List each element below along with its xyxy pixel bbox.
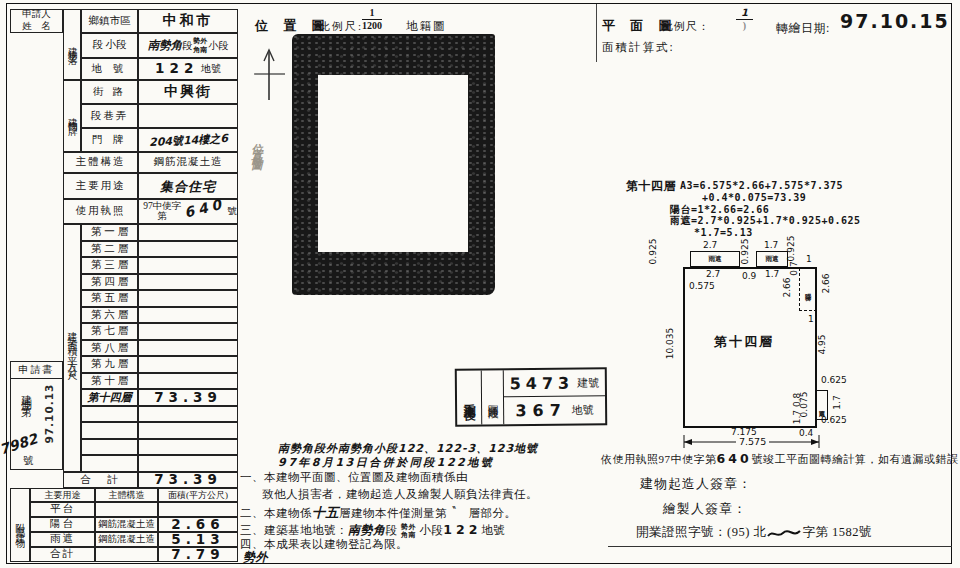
annex-row-platform-area bbox=[158, 502, 238, 517]
application-title: 申請書 bbox=[11, 362, 62, 379]
label-main-usage: 主要用途 bbox=[63, 173, 138, 199]
rain-canopy-label-1: 雨遮 bbox=[709, 256, 722, 263]
annex-row-total-structure bbox=[95, 547, 158, 562]
floor-blank-2-value bbox=[138, 422, 238, 439]
label-township: 鄉鎮市區 bbox=[81, 9, 138, 33]
resurvey-land-row: 367 地號 bbox=[504, 396, 605, 424]
dim-10035-left: 10.035 bbox=[666, 324, 675, 364]
plan-scale-label: 比例尺： bbox=[662, 21, 710, 32]
floor-2-label: 第 二 層 bbox=[81, 241, 138, 257]
dim-17-08-inner: 1.7 0.8 bbox=[793, 391, 802, 427]
value-main-structure: 鋼筋混凝土造 bbox=[138, 152, 238, 173]
floor-blank-1-label bbox=[81, 406, 138, 422]
note-handwritten-merge: 97年8月13日合併於同段122地號 bbox=[278, 457, 494, 468]
applicant-label-line1: 申請人 bbox=[22, 9, 51, 21]
land-number-unit: 地號 bbox=[572, 402, 594, 417]
area-total-label: 合 計 bbox=[63, 472, 138, 488]
signature-drafter-label: 繪製人簽章： bbox=[663, 502, 747, 515]
location-map-type: 地籍圖 bbox=[406, 21, 447, 33]
floor-10-value bbox=[138, 373, 238, 389]
resurvey-stamp-box: 重測後 圓通段 5473 建號 367 地號 bbox=[455, 367, 608, 426]
rain-canopy-label-2: 雨遮 bbox=[766, 256, 779, 263]
floor-14-value: 73.39 bbox=[138, 389, 238, 406]
floor-7-label: 第 七 層 bbox=[81, 323, 138, 340]
floor-2-value bbox=[138, 241, 238, 257]
note-item-3-stack: 勢外角南 bbox=[401, 523, 416, 539]
signature-area-underline bbox=[608, 546, 952, 547]
dim-0575-inset: 0.575 bbox=[689, 282, 715, 291]
business-license-line: 開業證照字號：(95) 北字第 1582號 bbox=[636, 526, 872, 540]
note-item-2: 二、本建物係十五層建物本件僅測量第〝 層部分。 bbox=[240, 506, 517, 520]
applicant-label-line2: 姓 名 bbox=[22, 21, 51, 33]
signature-builder-label: 建物起造人簽章： bbox=[640, 477, 752, 490]
plan-scale-fraction: 1 ) bbox=[736, 7, 753, 32]
balcony-shape: 陽台 bbox=[799, 268, 817, 311]
plan-calc-label: 面積計算式: bbox=[602, 42, 675, 54]
formula-line-2: +0.4*0.075=73.39 bbox=[702, 193, 806, 203]
floor-14-label: 第十四層 bbox=[81, 389, 138, 406]
annex-row-platform-use: 平台 bbox=[30, 502, 95, 517]
note-item-2-handwritten: 十五 bbox=[312, 505, 339, 520]
floor-8-value bbox=[138, 340, 238, 356]
certification-line: 依使用執照97中使字第640號竣工平面圖轉繪計算，如有遺漏或錯誤 bbox=[601, 453, 959, 466]
dim-1-below-balcony: 1 bbox=[808, 315, 814, 324]
plan-date-stamp: 97.10.15 bbox=[840, 12, 950, 31]
note-item-4: 四、本成果表以建物登記為限。 bbox=[240, 539, 408, 551]
certification-license-number: 640 bbox=[717, 451, 752, 466]
floor-5-label: 第 五 層 bbox=[81, 290, 138, 307]
application-number-box: 申請書 建測字第 號 97.10.13 bbox=[10, 361, 63, 470]
value-land-number: 122 地號 bbox=[138, 58, 238, 80]
license-number-handwritten: 640 bbox=[183, 196, 226, 220]
label-door-number: 門 牌 bbox=[81, 128, 138, 152]
annex-row-total-use: 合計 bbox=[30, 547, 95, 562]
section-handwritten: 南勢角 bbox=[148, 40, 183, 52]
north-arrow-icon bbox=[252, 44, 288, 102]
handwritten-scribble bbox=[766, 527, 802, 540]
applicant-name-box: 申請人 姓 名 bbox=[10, 9, 63, 33]
note-item-1: 一、本建物平面圖、位置圖及建物面積係由 bbox=[240, 472, 468, 484]
dim-17-below: 1.7 bbox=[765, 270, 779, 279]
label-main-structure: 主體構造 bbox=[63, 152, 138, 173]
label-lane-alley: 段巷弄 bbox=[81, 104, 138, 128]
section-suffix: 小段 bbox=[208, 41, 228, 51]
floor-blank-4-label bbox=[81, 455, 138, 472]
group-building-location: 建物坐落 bbox=[63, 9, 81, 80]
floor-blank-1-value bbox=[138, 406, 238, 422]
map-faint-handwriting: 位置略圖 bbox=[248, 134, 263, 158]
annex-row-balcony-structure: 鋼筋混凝土造 bbox=[95, 517, 158, 532]
plan-date-label: 轉繪日期: bbox=[776, 22, 830, 34]
building-number-unit: 建號 bbox=[577, 375, 599, 390]
location-map-scale-fraction: 1 1200 bbox=[362, 7, 382, 32]
land-number: 367 bbox=[515, 401, 567, 420]
dim-0625-bottom: 0.625 bbox=[821, 416, 847, 425]
area-total-value: 73.39 bbox=[138, 472, 238, 488]
bottom-edge-handwriting: 勢外 bbox=[243, 551, 268, 563]
rain-canopy-top-right: 雨遮 bbox=[756, 251, 788, 267]
label-use-license: 使用執照 bbox=[63, 199, 138, 224]
floor-8-label: 第 八 層 bbox=[81, 340, 138, 356]
floor-1-value bbox=[138, 224, 238, 241]
location-map-scale-label: 比例尺: bbox=[319, 21, 363, 32]
building-survey-document: 申請人 姓 名 建物坐落 鄉鎮市區 中和市 段 小段 南勢角段 勢外角南 小段 … bbox=[0, 0, 960, 568]
dim-266-inner: 2.66 bbox=[783, 273, 792, 303]
floor-5-value bbox=[138, 290, 238, 307]
annex-row-canopy-structure: 鋼筋混凝土造 bbox=[95, 532, 158, 547]
dim-27-below: 2.7 bbox=[706, 270, 720, 279]
dim-7575-total: 7.575 bbox=[736, 437, 769, 447]
floor-blank-3-value bbox=[138, 439, 238, 455]
plan-room-label: 第十四層 bbox=[714, 333, 774, 351]
floor-9-label: 第 九 層 bbox=[81, 356, 138, 373]
floor-3-value bbox=[138, 257, 238, 274]
dim-0925-left: 0.925 bbox=[649, 237, 658, 267]
header-divider bbox=[596, 4, 597, 62]
floor-10-label: 第 十 層 bbox=[81, 373, 138, 389]
note-item-3: 三、建築基地地號：南勢角段 勢外角南 小段122地號 bbox=[240, 523, 505, 539]
dim-0925-mid: 0.925 bbox=[741, 237, 750, 267]
group-building-area: 建築面積（平方公尺） bbox=[63, 224, 81, 472]
group-annex-building: 附屬建物 bbox=[10, 488, 30, 562]
dim-495-right: 4.95 bbox=[818, 330, 827, 360]
floor-4-label: 第 四 層 bbox=[81, 274, 138, 290]
note-item-1-continued: 致他人損害者，建物起造人及繪製人願負法律責任。 bbox=[262, 489, 538, 501]
value-lane-alley bbox=[138, 104, 238, 128]
value-township: 中和市 bbox=[138, 9, 238, 33]
dim-266-outer: 2.66 bbox=[822, 269, 831, 299]
dim-27-above: 2.7 bbox=[703, 241, 717, 250]
cadastral-map-inner-white bbox=[318, 75, 468, 252]
balcony-label: 陽台 bbox=[805, 288, 812, 290]
resurvey-building-row: 5473 建號 bbox=[504, 369, 605, 397]
floor-blank-2-label bbox=[81, 422, 138, 439]
floor-9-value bbox=[138, 356, 238, 373]
note-item-3-number: 122 bbox=[443, 522, 481, 537]
value-street: 中興街 bbox=[138, 80, 238, 104]
label-section: 段 小段 bbox=[81, 33, 138, 58]
floor-blank-4-value bbox=[138, 455, 238, 472]
annex-header-use: 主要用途 bbox=[30, 488, 95, 502]
annex-header-structure: 主體構造 bbox=[95, 488, 158, 502]
annex-row-canopy-area: 5.13 bbox=[158, 532, 238, 547]
label-street: 街 路 bbox=[81, 80, 138, 104]
floor-6-label: 第 六 層 bbox=[81, 307, 138, 323]
application-unit: 號 bbox=[23, 454, 34, 468]
building-number: 5473 bbox=[510, 373, 575, 393]
dim-17-above: 1.7 bbox=[764, 241, 778, 250]
annex-row-total-area: 7.79 bbox=[158, 547, 238, 562]
dim-0625-top: 0.625 bbox=[821, 376, 847, 385]
value-door-number: 204號14樓之6 bbox=[138, 128, 238, 152]
formula-line-4: 雨遮=2.7*0.925+1.7*0.925+0.625 bbox=[670, 216, 861, 226]
dim-1-top: 1 bbox=[806, 255, 812, 264]
resurvey-label: 重測後 bbox=[457, 370, 482, 424]
floor-4-value bbox=[138, 274, 238, 290]
formula-line-3: 陽台=1*2.66=2.66 bbox=[670, 205, 769, 215]
annex-row-balcony-area: 2.66 bbox=[158, 517, 238, 532]
label-land-number: 地 號 bbox=[81, 58, 138, 80]
value-main-usage: 集合住宅 bbox=[138, 173, 238, 199]
annex-row-balcony-use: 陽台 bbox=[30, 517, 95, 532]
annex-header-area: 面積(平方公尺) bbox=[158, 488, 238, 502]
annex-row-platform-structure bbox=[95, 502, 158, 517]
note-item-2-mark: 〝 bbox=[447, 505, 457, 515]
dim-17-shelter: 1.7 bbox=[833, 388, 842, 418]
floor-6-value bbox=[138, 307, 238, 323]
section-seg: 段 bbox=[182, 41, 192, 51]
floor-1-label: 第 一 層 bbox=[81, 224, 138, 241]
application-date-stamp: 97.10.13 bbox=[43, 389, 55, 444]
rain-canopy-top-left: 雨遮 bbox=[690, 251, 740, 267]
section-subsection-stack: 勢外角南 bbox=[193, 37, 207, 53]
application-vertical-label: 建測字第 bbox=[19, 386, 33, 402]
formula-floor-title: 第十四層 bbox=[626, 180, 676, 192]
note-item-3-handwritten: 南勢角 bbox=[348, 523, 386, 537]
dim-09-gap: 0.9 bbox=[742, 272, 756, 281]
floor-3-label: 第 三 層 bbox=[81, 257, 138, 274]
group-doorplate: 建物門牌 bbox=[63, 80, 81, 152]
floor-blank-3-label bbox=[81, 439, 138, 455]
value-use-license: 97中使字第 640 號 bbox=[138, 199, 238, 224]
annex-row-canopy-use: 雨遮 bbox=[30, 532, 95, 547]
floor-7-value bbox=[138, 323, 238, 340]
cadastral-map-notch bbox=[452, 232, 466, 252]
note-handwritten-parcels: 南勢角段外南勢角小段122、122-3、123地號 bbox=[278, 443, 538, 454]
value-section: 南勢角段 勢外角南 小段 bbox=[138, 33, 238, 58]
resurvey-section: 圓通段 bbox=[482, 370, 504, 424]
formula-line-1: A3=6.575*2.66+7.575*7.375 bbox=[680, 181, 843, 191]
